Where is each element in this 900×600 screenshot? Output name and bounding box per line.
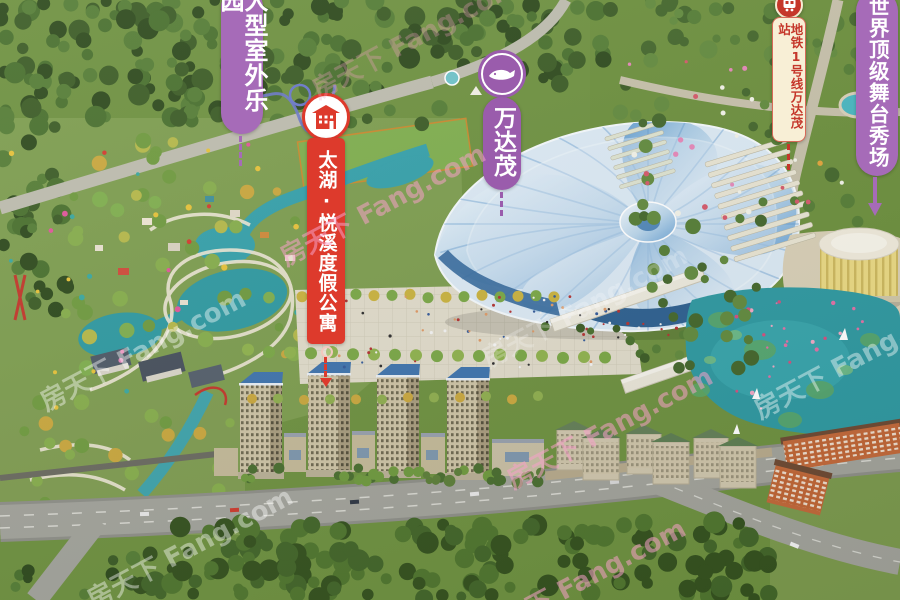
whale-icon: [487, 65, 517, 83]
apartment-pointer-line: [324, 357, 327, 377]
outdoor-park-label-text: 大型室外乐园: [218, 0, 266, 134]
metro-pointer-line: [787, 144, 790, 170]
train-icon: [782, 0, 797, 12]
apartment-pointer-ring: [321, 346, 333, 358]
wanda-icon-circle: [481, 53, 523, 95]
label-stage-show: 世界顶级舞台秀场: [856, 0, 898, 176]
label-apartment: 太湖·悦溪度假公寓: [307, 138, 345, 344]
wanda-pointer-line: [500, 192, 503, 216]
aerial-rendering: 大型室外乐园 太湖·悦溪度假公寓 万达茂: [0, 0, 900, 600]
wanda-mao-label-text: 万达茂: [491, 97, 514, 190]
label-wanda-mao: 万达茂: [483, 97, 521, 190]
apartment-icon-circle: [302, 93, 350, 141]
building-icon: [312, 105, 340, 130]
apartment-pointer-arrowhead: [320, 378, 332, 387]
stage-show-label-text: 世界顶级舞台秀场: [867, 0, 888, 176]
stage-show-arrowhead: [868, 203, 882, 216]
stage-show-arrow-shaft: [873, 177, 877, 204]
outdoor-park-pointer-line: [239, 128, 242, 166]
label-metro-station: 地铁1号线万达茂站: [772, 17, 806, 142]
metro-label-text: 地铁1号线万达茂站: [777, 18, 802, 141]
label-outdoor-park: 大型室外乐园: [221, 0, 263, 134]
apartment-label-text: 太湖·悦溪度假公寓: [317, 138, 336, 344]
